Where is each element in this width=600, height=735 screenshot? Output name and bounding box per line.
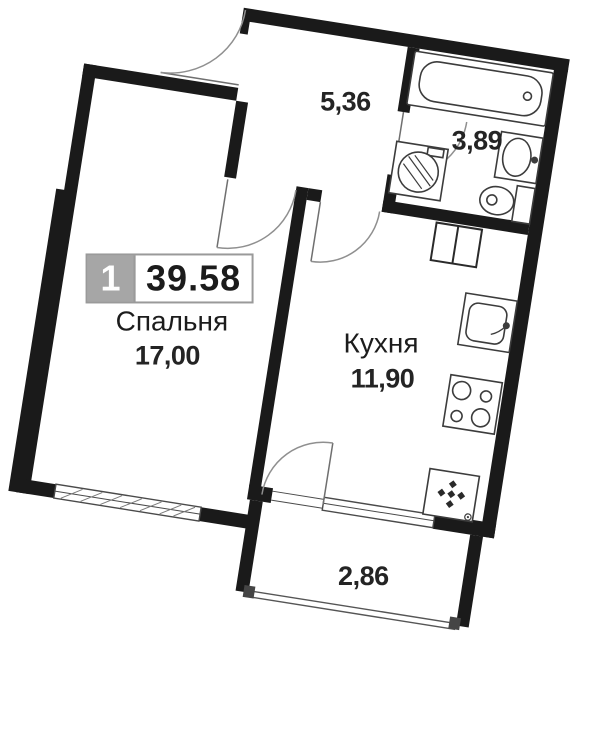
- balcony-area-label: 2,86: [338, 563, 389, 590]
- entrance-door-icon: [161, 0, 251, 85]
- bedroom-area-label: 17,00: [135, 343, 200, 370]
- wall-bedroom-stub: [224, 101, 248, 179]
- kitchen-door-icon: [311, 202, 380, 271]
- vent-duct-icon: [431, 223, 482, 268]
- floorplan-page: { "plan": { "unit_label": { "number": "1…: [0, 0, 600, 643]
- wall-divider: [249, 186, 308, 488]
- balcony-door-icon: [262, 433, 333, 504]
- wall-left-jog: [8, 189, 65, 493]
- unit-label-box: 1 39.58: [86, 253, 254, 303]
- bedroom-window-icon: [54, 484, 201, 521]
- wall-bedroom-bottom-right: [199, 507, 252, 529]
- wall-hall-stub: [307, 188, 323, 202]
- kitchen-area-label: 11,90: [351, 366, 415, 393]
- kitchen-name-label: Кухня: [344, 329, 419, 357]
- washing-machine-icon: [389, 141, 448, 200]
- kitchen-sink-icon: [458, 293, 517, 352]
- bathroom-area-label: 3,89: [452, 127, 503, 154]
- balcony-door-window-unit: [271, 489, 435, 527]
- floorplan: 1 39.58 Спальня 17,00 5,36 3,89 Кухня 11…: [0, 0, 600, 735]
- hallway-area-label: 5,36: [320, 88, 371, 115]
- wall-balcony-right: [456, 535, 483, 628]
- unit-number: 1: [88, 255, 136, 301]
- balcony-glazing-icon: [243, 584, 461, 631]
- unit-total-area: 39.58: [136, 255, 252, 301]
- bedroom-door-icon: [217, 179, 296, 258]
- refrigerator-icon: [423, 469, 480, 522]
- wall-bedroom-top: [82, 63, 238, 100]
- bedroom-name-label: Спальня: [116, 307, 229, 335]
- wall-bedroom-bottom-left: [16, 478, 56, 498]
- floorplan-drawing: [0, 0, 600, 735]
- stove-icon: [443, 375, 502, 434]
